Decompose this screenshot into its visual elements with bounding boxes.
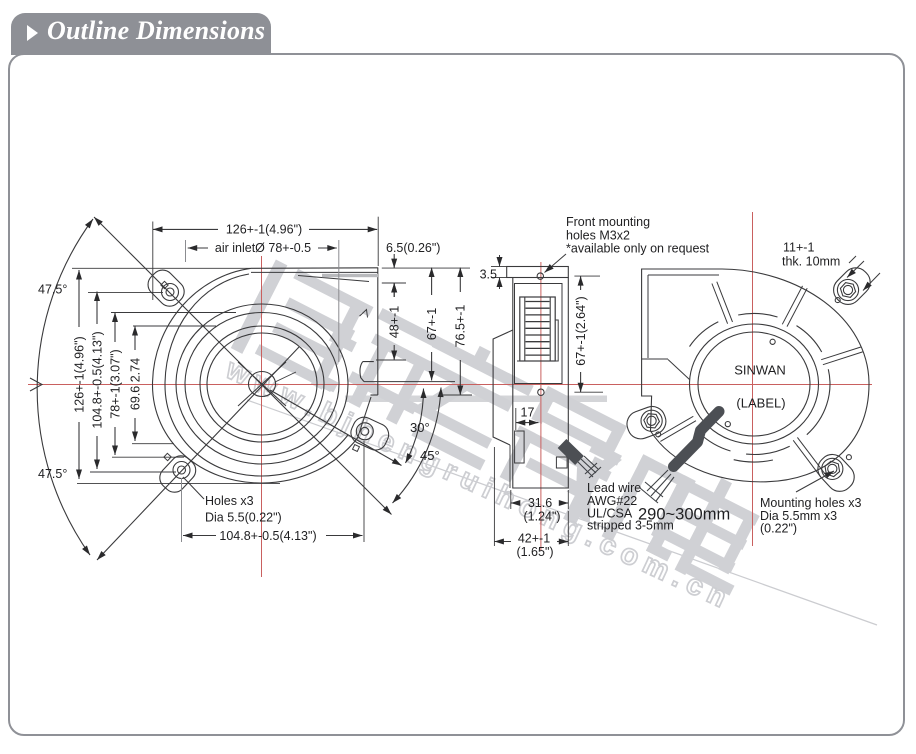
svg-text:11+-1: 11+-1 <box>783 241 814 255</box>
svg-text:47.5°: 47.5° <box>38 283 67 297</box>
svg-text:6.5(0.26"): 6.5(0.26") <box>386 241 440 255</box>
svg-text:(LABEL): (LABEL) <box>736 396 785 411</box>
svg-text:Dia 5.5(0.22"): Dia 5.5(0.22") <box>205 511 282 525</box>
svg-text:47.5°: 47.5° <box>38 467 67 481</box>
svg-text:69.6 2.74: 69.6 2.74 <box>129 358 143 410</box>
svg-text:stripped 3-5mm: stripped 3-5mm <box>587 519 674 533</box>
svg-text:Mounting holes x3: Mounting holes x3 <box>760 496 862 510</box>
svg-text:Lead wire: Lead wire <box>587 481 641 495</box>
svg-text:air inletØ 78+-0.5: air inletØ 78+-0.5 <box>215 241 311 255</box>
svg-text:Holes x3: Holes x3 <box>205 494 254 508</box>
svg-text:67+-1: 67+-1 <box>425 308 439 340</box>
svg-text:holes M3x2: holes M3x2 <box>566 229 630 243</box>
svg-text:Front mounting: Front mounting <box>566 215 650 229</box>
svg-text:(1.65"): (1.65") <box>516 545 553 559</box>
svg-text:31.6: 31.6 <box>528 496 552 510</box>
svg-text:30°: 30° <box>410 420 430 435</box>
svg-text:126+-1(4.96"): 126+-1(4.96") <box>226 223 302 237</box>
svg-text:78+-1(3.07"): 78+-1(3.07") <box>109 349 123 418</box>
svg-text:48+-1: 48+-1 <box>388 306 402 338</box>
svg-text:3.5: 3.5 <box>480 268 497 282</box>
svg-text:76.5+-1: 76.5+-1 <box>454 305 468 348</box>
svg-text:67+-1(2.64"): 67+-1(2.64") <box>574 296 588 365</box>
svg-text:104.8+-0.5(4.13"): 104.8+-0.5(4.13") <box>219 529 316 543</box>
svg-text:17: 17 <box>521 406 535 420</box>
svg-text:SINWAN: SINWAN <box>734 363 786 378</box>
svg-text:thk. 10mm: thk. 10mm <box>782 255 840 269</box>
svg-text:42+-1: 42+-1 <box>518 532 550 546</box>
svg-text:104.8+-0.5(4.13"): 104.8+-0.5(4.13") <box>91 331 105 428</box>
svg-text:126+-1(4.96"): 126+-1(4.96") <box>73 336 87 412</box>
svg-text:45°: 45° <box>420 448 440 463</box>
svg-text:(0.22"): (0.22") <box>760 522 797 536</box>
svg-text:*available only on request: *available only on request <box>566 242 710 256</box>
svg-text:(1.24"): (1.24") <box>523 510 560 524</box>
